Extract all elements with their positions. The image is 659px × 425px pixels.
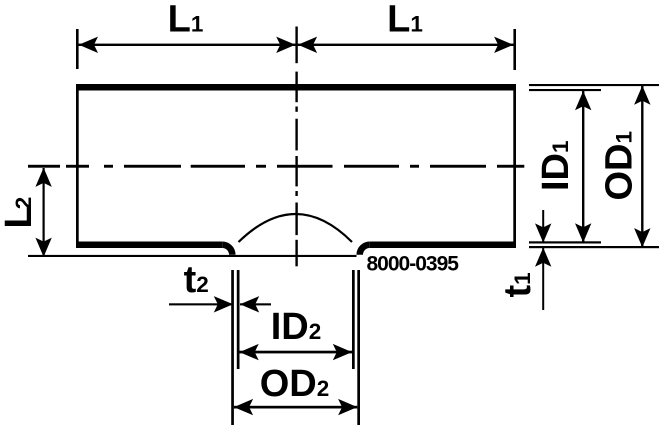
svg-text:OD1: OD1 — [599, 131, 641, 201]
svg-text:8000-0395: 8000-0395 — [367, 253, 460, 276]
svg-text:L2: L2 — [0, 197, 40, 229]
svg-text:t2: t2 — [184, 259, 209, 301]
svg-text:ID1: ID1 — [535, 140, 577, 191]
svg-text:t1: t1 — [497, 272, 539, 297]
svg-text:L1: L1 — [168, 0, 204, 41]
svg-text:OD2: OD2 — [260, 363, 330, 405]
svg-text:ID2: ID2 — [271, 306, 322, 348]
svg-text:L1: L1 — [387, 0, 423, 41]
